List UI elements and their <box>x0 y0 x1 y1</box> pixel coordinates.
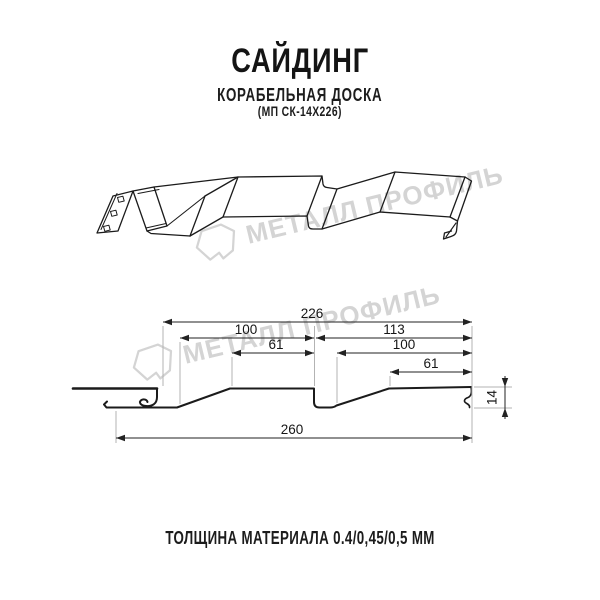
dim-height: 14 <box>485 390 500 406</box>
dim-board1-inner: 61 <box>268 337 283 352</box>
dim-total-top: 226 <box>301 306 324 321</box>
dimension-lines <box>116 322 505 438</box>
dim-board2-inner: 61 <box>423 356 438 371</box>
dim-board2-mid: 100 <box>393 337 416 352</box>
product-drawing-page: САЙДИНГ КОРАБЕЛЬНАЯ ДОСКА (МП СК-14Х226)… <box>0 0 600 600</box>
perspective-drawing-3d <box>97 172 472 239</box>
cross-section-profile <box>73 387 471 408</box>
dim-total-bottom: 260 <box>281 422 304 437</box>
dim-board2-top: 113 <box>383 322 405 337</box>
dim-board1-top: 100 <box>235 322 258 337</box>
technical-drawing: 226 100 61 113 100 61 260 14 <box>0 0 600 600</box>
extension-lines <box>116 326 512 443</box>
